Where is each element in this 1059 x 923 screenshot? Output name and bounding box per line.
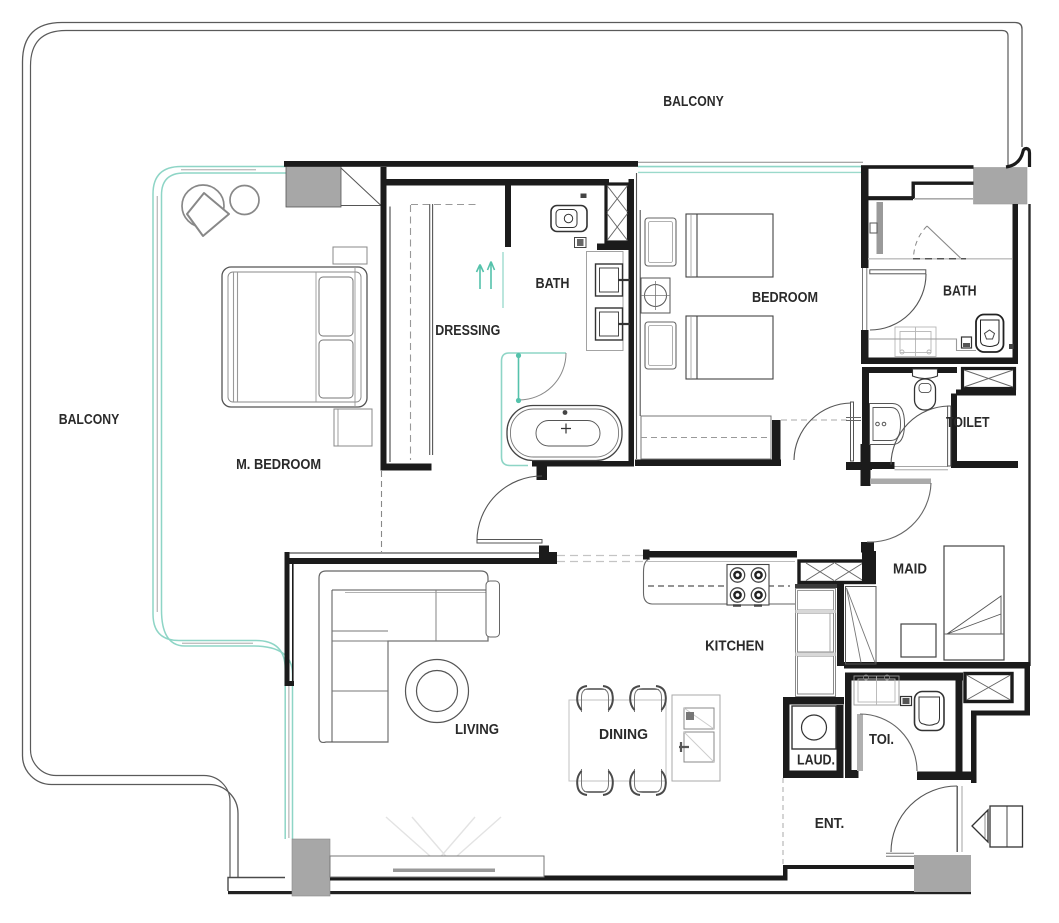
svg-text:BATH: BATH: [943, 284, 977, 300]
svg-text:BATH: BATH: [536, 276, 570, 292]
svg-text:DRESSING: DRESSING: [435, 323, 500, 339]
svg-text:LIVING: LIVING: [455, 722, 499, 738]
svg-text:TOILET: TOILET: [946, 415, 990, 431]
svg-text:DINING: DINING: [599, 727, 648, 743]
svg-text:LAUD.: LAUD.: [797, 753, 835, 769]
svg-text:BEDROOM: BEDROOM: [752, 290, 818, 306]
svg-text:TOI.: TOI.: [869, 732, 894, 748]
svg-text:KITCHEN: KITCHEN: [705, 639, 764, 655]
svg-text:BALCONY: BALCONY: [663, 94, 724, 110]
svg-text:ENT.: ENT.: [815, 816, 845, 832]
svg-text:MAID: MAID: [893, 562, 927, 578]
svg-text:BALCONY: BALCONY: [59, 412, 120, 428]
svg-text:M. BEDROOM: M. BEDROOM: [236, 457, 321, 473]
